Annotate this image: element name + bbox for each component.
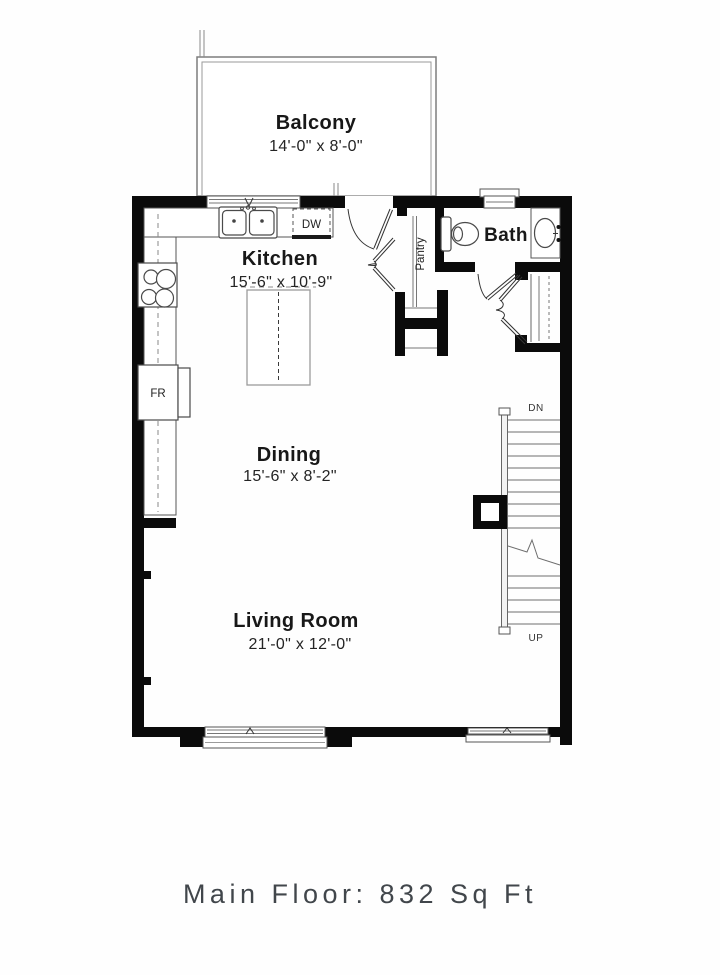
- living-room-label: Living Room: [233, 610, 359, 632]
- floor-plan-drawing: Balcony 14'-0" x 8'-0": [0, 0, 720, 975]
- dining-dims: 15'-6" x 8'-2": [243, 468, 337, 485]
- balcony-label: Balcony: [276, 112, 357, 134]
- floor-plan-canvas: Balcony 14'-0" x 8'-0": [0, 0, 720, 975]
- stairs: DN UP: [473, 403, 560, 644]
- living-room-window-left: [203, 727, 327, 748]
- fridge-icon: FR: [138, 365, 190, 420]
- stairs-down-label: DN: [528, 403, 543, 414]
- hall-closet: [496, 274, 549, 344]
- stair-break-line: [508, 540, 560, 565]
- dining-label: Dining: [257, 444, 322, 466]
- bath-label: Bath: [484, 225, 528, 246]
- balcony-dims: 14'-0" x 8'-0": [269, 138, 363, 155]
- bath-window: [480, 189, 519, 208]
- kitchen-dims: 15'-6" x 10'-9": [230, 274, 333, 291]
- balcony-door: [345, 196, 393, 250]
- floor-area-label: Main Floor: 832 Sq Ft: [183, 879, 537, 909]
- stairs-up-label: UP: [529, 633, 544, 644]
- kitchen-island: [241, 287, 316, 385]
- living-room-dims: 21'-0" x 12'-0": [249, 636, 352, 653]
- bathroom: Bath: [441, 208, 561, 300]
- stove-icon: [138, 263, 177, 307]
- bath-door: [478, 273, 518, 300]
- kitchen-label: Kitchen: [242, 248, 318, 270]
- room-labels: Dining 15'-6" x 8'-2" Living Room 21'-0"…: [233, 444, 359, 653]
- fridge-label: FR: [150, 388, 165, 400]
- balcony: Balcony 14'-0" x 8'-0": [197, 30, 436, 196]
- dishwasher-label: DW: [302, 219, 321, 231]
- dishwasher-icon: DW: [292, 209, 331, 239]
- pantry-label: Pantry: [415, 237, 427, 270]
- vanity-sink-icon: [531, 208, 561, 258]
- kitchen-sink-icon: [219, 206, 277, 238]
- living-room-window-right: [466, 728, 550, 742]
- toilet-icon: [441, 217, 479, 251]
- stair-post: [473, 495, 507, 529]
- pantry-doors: [368, 238, 395, 291]
